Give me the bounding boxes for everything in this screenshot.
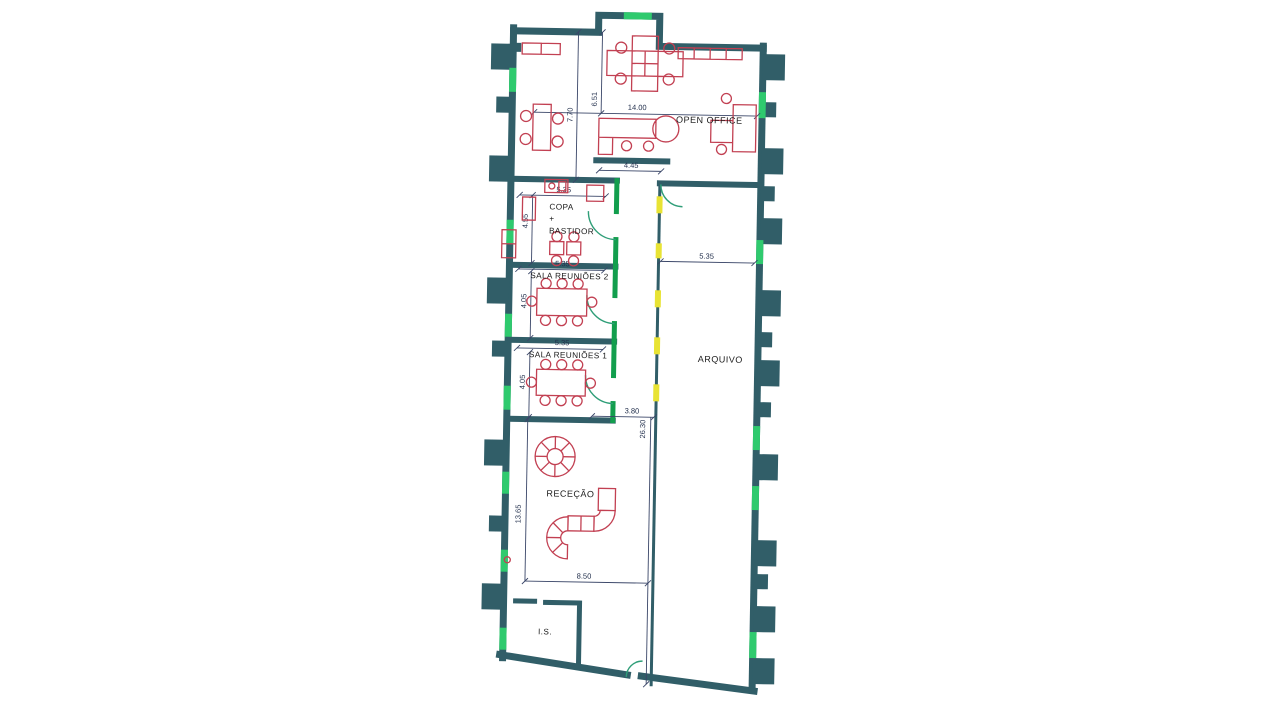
copa-label-line2: + — [549, 214, 554, 223]
dim-sala1-depth: 4.05 — [518, 375, 527, 390]
dim-line-copa-depth — [531, 195, 532, 263]
p-shaped-desk — [598, 115, 679, 156]
sala1-label: SALA REUNIÕES 1 — [529, 349, 608, 360]
corridor-wall — [651, 183, 660, 686]
sala1-right-wall — [613, 342, 614, 421]
sala2-door-arc — [586, 295, 614, 323]
dim-line-corridor-length — [646, 417, 651, 684]
dim-line-sala2-depth — [530, 271, 531, 338]
arquivo-door-arc — [660, 184, 682, 206]
dim-line-partition — [599, 170, 661, 171]
dim-line-sala1-depth — [529, 352, 530, 417]
door-swings — [580, 183, 683, 678]
plan-group: 14.00 7.70 6.51 4.45 5.35 4.55 5.35 4.05… — [480, 13, 786, 691]
copa-label-line1: COPA — [549, 202, 573, 211]
arquivo-label: ARQUIVO — [698, 354, 743, 365]
rececao-label: RECEÇÃO — [546, 488, 594, 499]
reception-desk-end — [598, 488, 615, 510]
dim-open-height: 7.70 — [565, 107, 574, 122]
sala1-bottom-wall — [507, 419, 613, 421]
sala2-chairs — [526, 278, 597, 326]
dim-line-open-inner — [601, 32, 602, 113]
sala1-chairs — [526, 359, 596, 406]
sala1-table — [536, 369, 585, 396]
interior-walls — [502, 159, 761, 688]
reception-desk-hook — [594, 510, 615, 531]
dim-line-corridor-entry — [592, 416, 654, 417]
p-desk-chairs — [621, 141, 653, 152]
dim-corridor-length: 26.30 — [638, 420, 647, 439]
arquivo-top-wall — [660, 183, 761, 185]
sala2-furniture — [526, 278, 597, 326]
right-l-desk — [710, 104, 756, 152]
dim-line-arquivo-width — [661, 261, 755, 263]
dim-rececao-width: 8.50 — [577, 571, 592, 580]
dim-rececao-depth: 13.65 — [513, 504, 522, 523]
sala2-table — [537, 288, 587, 316]
cross-desk-dividers — [632, 51, 658, 76]
dim-line-rececao-depth — [525, 419, 528, 581]
open-office-furniture — [520, 34, 758, 157]
copa-right-wall — [615, 181, 617, 267]
is-label: I.S. — [538, 627, 552, 636]
wall-bottom-left — [499, 655, 627, 675]
sala1-furniture — [526, 359, 596, 406]
dim-corridor-entry: 3.80 — [625, 406, 640, 415]
copa-label-line3: BASTIDOR — [549, 226, 594, 236]
sala2-label: SALA REUNIÕES 2 — [530, 270, 609, 281]
sala1-door-arc — [585, 375, 613, 403]
dim-sala2-width: 5.35 — [555, 259, 570, 268]
dim-line-rececao-width — [525, 581, 648, 583]
dim-line-open-height — [576, 32, 579, 180]
left-meeting-chairs — [520, 110, 564, 147]
rececao-furniture — [504, 436, 616, 565]
bastidor-rack — [587, 185, 604, 201]
dim-partition: 4.45 — [624, 161, 639, 170]
wall-corner-box — [512, 43, 521, 52]
dim-sala1-width: 5.35 — [555, 338, 570, 347]
floor-plan-page: 14.00 7.70 6.51 4.45 5.35 4.55 5.35 4.05… — [0, 0, 1280, 720]
copa-tables — [550, 241, 581, 255]
wall-bottom-right — [641, 676, 754, 691]
dim-open-inner: 6.51 — [590, 92, 599, 107]
dim-open-width: 14.00 — [628, 103, 647, 112]
dim-arquivo-width: 5.35 — [699, 252, 714, 261]
floor-plan-drawing: 14.00 7.70 6.51 4.45 5.35 4.55 5.35 4.05… — [0, 0, 1280, 720]
left-cabinets — [522, 43, 560, 55]
sala2-right-wall — [614, 267, 615, 342]
open-office-label: OPEN OFFICE — [676, 115, 743, 126]
